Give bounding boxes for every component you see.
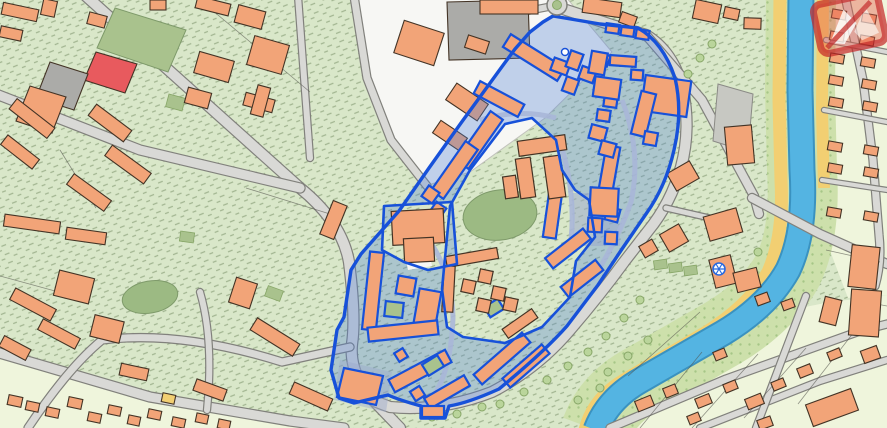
tree-icon [604, 368, 612, 376]
tree-icon [453, 410, 461, 418]
tree-icon [696, 54, 704, 62]
watermark-logo [812, 0, 887, 55]
tree-icon [708, 40, 716, 48]
tree-icon [624, 352, 632, 360]
tree-icon [754, 248, 762, 256]
map-canvas[interactable] [0, 0, 887, 428]
map-svg[interactable] [0, 0, 887, 428]
tree-icon [478, 403, 486, 411]
tree-icon [620, 314, 628, 322]
tree-icon [520, 388, 528, 396]
tree-icon [543, 376, 551, 384]
tree-icon [596, 384, 604, 392]
tree-icon [564, 362, 572, 370]
tree-icon [602, 332, 610, 340]
tree-icon [644, 336, 652, 344]
tree-icon [574, 396, 582, 404]
tree-icon [496, 400, 504, 408]
tree-icon [584, 348, 592, 356]
tree-icon [636, 296, 644, 304]
tree-icon [684, 70, 692, 78]
